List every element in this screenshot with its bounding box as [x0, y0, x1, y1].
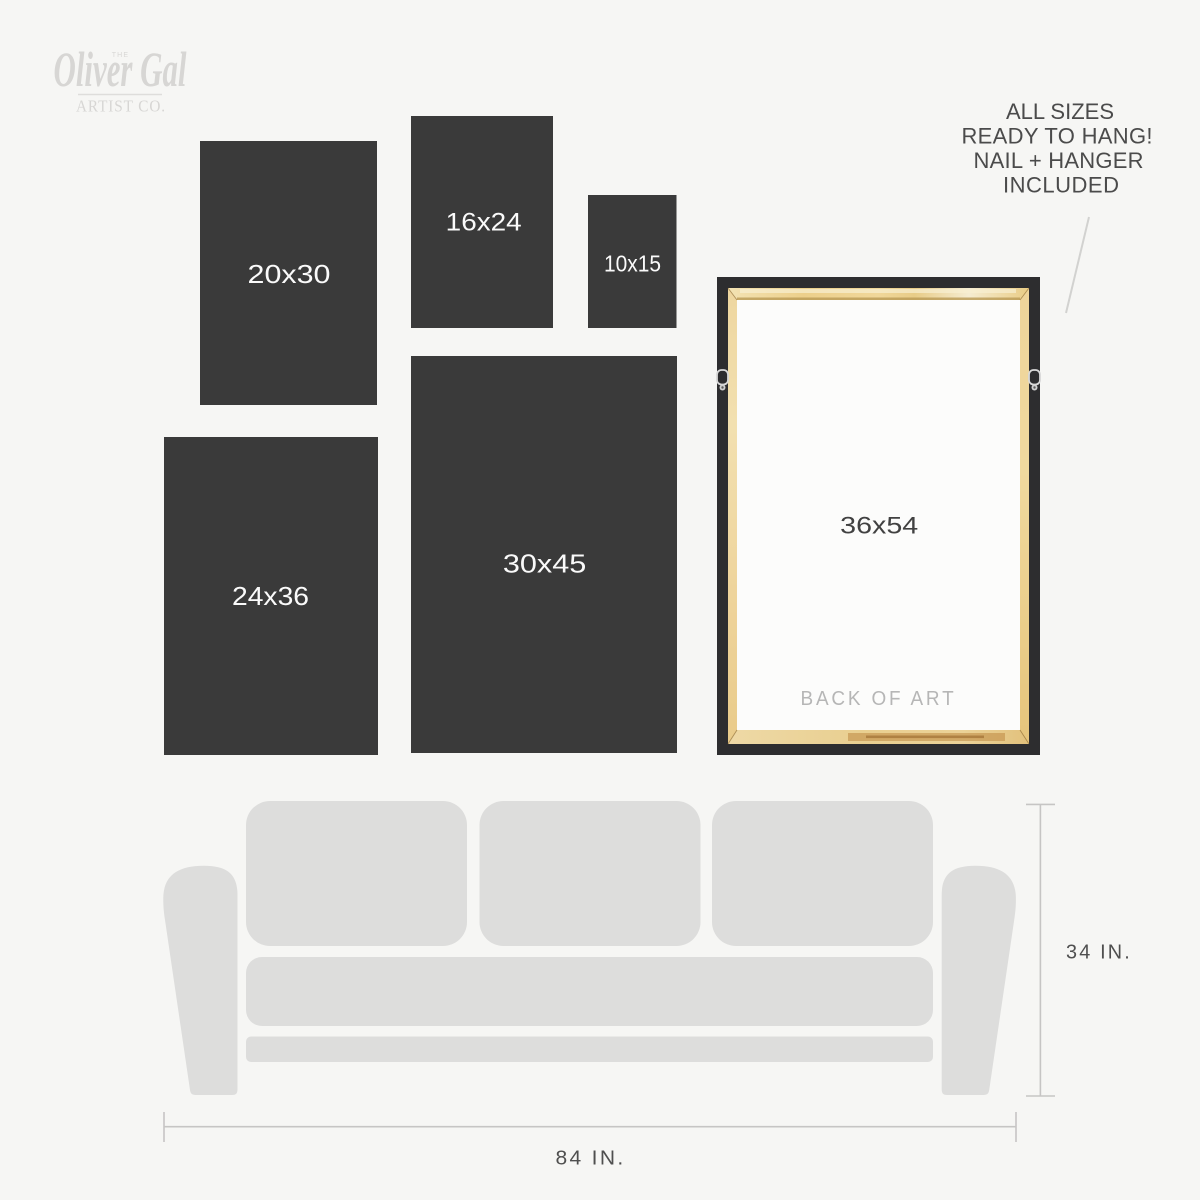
svg-text:ALL SIZES: ALL SIZES	[1006, 99, 1114, 124]
svg-text:NAIL + HANGER: NAIL + HANGER	[974, 148, 1144, 173]
svg-text:16x24: 16x24	[446, 209, 522, 237]
svg-text:34 IN.: 34 IN.	[1066, 942, 1132, 964]
svg-text:84 IN.: 84 IN.	[556, 1148, 626, 1170]
svg-text:10x15: 10x15	[604, 250, 661, 276]
svg-text:24x36: 24x36	[232, 581, 309, 611]
svg-text:Oliver Gal: Oliver Gal	[54, 41, 187, 97]
svg-text:30x45: 30x45	[503, 549, 587, 579]
svg-text:BACK OF ART: BACK OF ART	[801, 688, 957, 710]
svg-text:READY TO HANG!: READY TO HANG!	[962, 124, 1153, 149]
svg-text:ARTIST CO.: ARTIST CO.	[76, 97, 166, 116]
svg-text:INCLUDED: INCLUDED	[1003, 173, 1119, 198]
svg-text:20x30: 20x30	[248, 259, 331, 289]
svg-text:36x54: 36x54	[840, 513, 918, 540]
